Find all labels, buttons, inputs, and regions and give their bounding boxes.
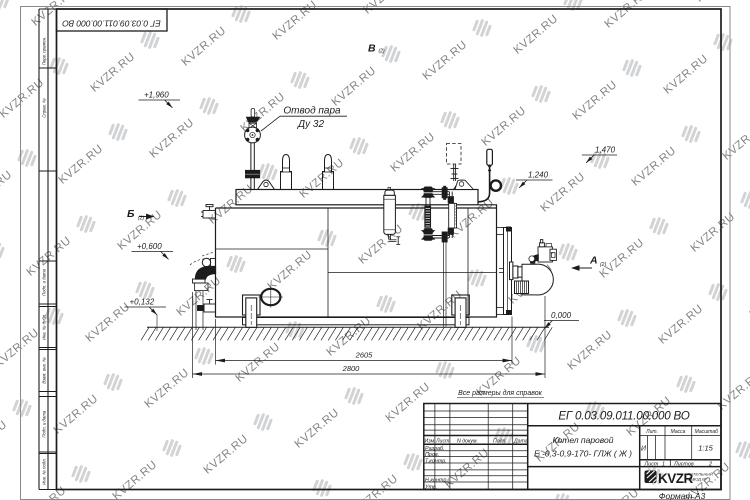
svg-text:Лист: Лист bbox=[644, 461, 659, 467]
svg-text:А: А bbox=[589, 255, 598, 267]
svg-text:N докум.: N докум. bbox=[457, 438, 478, 444]
svg-text:1,470: 1,470 bbox=[595, 146, 616, 155]
svg-text:1:15: 1:15 bbox=[698, 444, 713, 453]
svg-text:(2): (2) bbox=[379, 49, 385, 55]
svg-text:ЕГ 0.03.09.011.00.000 ВО: ЕГ 0.03.09.011.00.000 ВО bbox=[558, 410, 689, 423]
svg-text:1,240: 1,240 bbox=[528, 171, 549, 180]
svg-text:+0,600: +0,600 bbox=[137, 242, 162, 251]
svg-text:Разраб.: Разраб. bbox=[425, 446, 445, 452]
svg-text:2605: 2605 bbox=[355, 351, 374, 360]
svg-text:2800: 2800 bbox=[342, 364, 361, 373]
svg-text:1: 1 bbox=[662, 461, 665, 467]
svg-text:Отвод пара: Отвод пара bbox=[283, 106, 341, 117]
svg-text:Листов: Листов bbox=[673, 461, 694, 467]
svg-text:Е -0,3-0,9-170- ГЛЖ ( Ж ): Е -0,3-0,9-170- ГЛЖ ( Ж ) bbox=[534, 449, 632, 459]
svg-text:2: 2 bbox=[708, 461, 712, 467]
svg-text:(2): (2) bbox=[600, 262, 606, 268]
svg-text:Лист: Лист bbox=[435, 438, 450, 444]
svg-text:Т.контр.: Т.контр. bbox=[425, 458, 447, 464]
svg-text:Инв. № дубл.: Инв. № дубл. bbox=[42, 314, 47, 340]
svg-text:Лит.: Лит. bbox=[645, 429, 658, 435]
svg-text:Справ. №: Справ. № bbox=[42, 98, 47, 118]
svg-text:Дата: Дата bbox=[513, 438, 528, 444]
svg-text:ЕГ 0.03.09.011.00.000 ВО: ЕГ 0.03.09.011.00.000 ВО bbox=[62, 19, 161, 29]
svg-text:+0,132: +0,132 bbox=[130, 298, 155, 307]
svg-text:Все размеры для справок: Все размеры для справок bbox=[458, 389, 543, 397]
svg-text:Перв. примен.: Перв. примен. bbox=[42, 37, 47, 66]
svg-text:Б: Б bbox=[127, 208, 135, 220]
svg-text:Ду 32: Ду 32 bbox=[297, 119, 324, 130]
svg-text:Подп. и дата: Подп. и дата bbox=[42, 268, 47, 296]
svg-text:ЗАВОД.РУ: ЗАВОД.РУ bbox=[688, 477, 708, 482]
svg-text:+1,960: +1,960 bbox=[144, 91, 169, 100]
svg-text:Взам. инв. №: Взам. инв. № bbox=[42, 357, 47, 384]
svg-text:Котел паровой: Котел паровой bbox=[553, 435, 614, 445]
svg-text:Формат А3: Формат А3 bbox=[659, 491, 706, 500]
svg-text:Подп. и дата: Подп. и дата bbox=[42, 410, 47, 438]
svg-text:Подп.: Подп. bbox=[493, 438, 507, 444]
svg-text:В: В bbox=[368, 43, 376, 55]
svg-text:Утв.: Утв. bbox=[424, 484, 437, 490]
svg-text:Масштаб: Масштаб bbox=[695, 429, 719, 435]
svg-text:Н.контр.: Н.контр. bbox=[425, 477, 448, 483]
svg-text:Изм.: Изм. bbox=[425, 438, 436, 444]
svg-text:0,000: 0,000 bbox=[551, 311, 572, 320]
svg-text:Масса: Масса bbox=[671, 429, 686, 435]
svg-text:Пров.: Пров. bbox=[425, 452, 439, 458]
svg-text:Инв. № подл.: Инв. № подл. bbox=[42, 458, 47, 485]
